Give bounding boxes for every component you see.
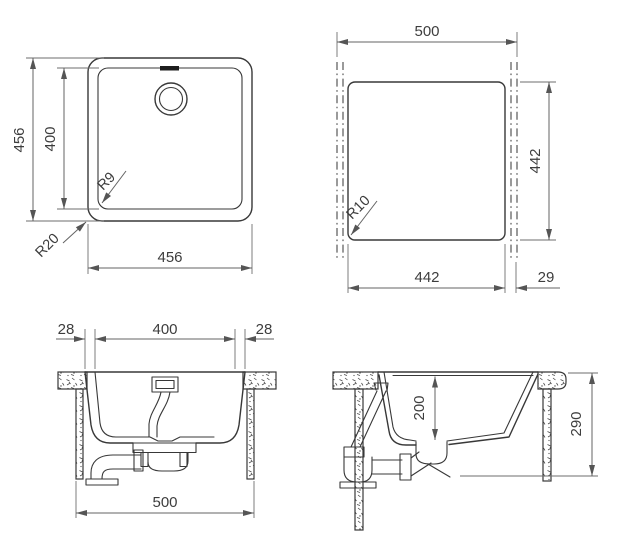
countertop-slab-back <box>538 372 566 389</box>
dim-plan-height: 456 <box>11 127 28 152</box>
dim-plan-width: 456 <box>157 249 182 266</box>
dim-front-bowl-width: 400 <box>152 321 177 338</box>
trap-coupling <box>134 450 143 471</box>
plan-sink-outline <box>88 58 252 221</box>
cutout-outline <box>348 82 505 240</box>
label-plan-outer-radius: R20 <box>33 231 63 261</box>
dim-cutout-width: 500 <box>414 23 439 40</box>
drain-cup <box>148 453 188 472</box>
cabinet-panel-left <box>76 389 83 479</box>
dim-front-left-offset: 28 <box>58 321 75 338</box>
dim-cutout-height: 442 <box>527 148 544 173</box>
side-countertop <box>333 372 566 530</box>
dim-cutout-inner-width: 442 <box>414 269 439 286</box>
wall-left-outer <box>85 372 133 443</box>
technical-drawing: 456 400 R9 R20 456 <box>0 0 638 538</box>
side-drain-cup <box>416 442 447 464</box>
cutout-cabinet-lines <box>337 62 517 258</box>
front-section-view: 28 400 28 500 <box>56 321 276 518</box>
cabinet-panel-right <box>247 389 254 479</box>
drain-fitting-right <box>180 453 187 467</box>
plan-dimensions: 456 400 R9 R20 456 <box>11 58 252 274</box>
plan-view: 456 400 R9 R20 456 <box>11 58 252 274</box>
overflow-hose-left <box>149 392 161 437</box>
countertop-slab-left <box>58 372 87 389</box>
wall-right-outer <box>196 372 245 443</box>
countertop-slab-right <box>243 372 276 389</box>
front-sink-section <box>85 372 245 485</box>
side-section-view: 200 290 <box>333 372 598 530</box>
plan-bowl-edge <box>98 68 242 209</box>
cabinet-panel-back <box>543 389 551 481</box>
dim-front-cabinet-width: 500 <box>152 494 177 511</box>
front-dimensions: 28 400 28 500 <box>56 321 274 518</box>
dim-side-bowl-depth: 200 <box>411 395 428 420</box>
cutout-view: 500 442 R10 442 29 <box>337 23 560 293</box>
plan-overflow-slot <box>160 66 179 71</box>
drain-fitting-left <box>141 453 148 467</box>
cabinet-panel-front <box>355 389 363 530</box>
dim-side-overall-depth: 290 <box>568 411 585 436</box>
side-trap-coupling <box>400 454 411 480</box>
dim-cutout-edge-offset: 29 <box>538 269 555 286</box>
drawing-svg: 456 400 R9 R20 456 <box>0 0 638 538</box>
side-wall-back-inner <box>447 372 533 441</box>
overflow-housing-inner <box>156 381 174 389</box>
trap-outlet-flange <box>86 479 118 485</box>
countertop-slab-front <box>333 372 378 389</box>
trap-elbow-inner <box>102 469 113 479</box>
dim-plan-bowl-height: 400 <box>42 126 59 151</box>
cutout-dimensions: 500 442 R10 442 29 <box>337 23 560 293</box>
side-dimensions: 200 290 <box>411 373 598 476</box>
dim-front-right-offset: 28 <box>256 321 273 338</box>
side-drain-locknut <box>428 464 450 477</box>
bowl-bottom-inner <box>95 372 214 441</box>
plan-drain-inner-ring <box>160 88 183 111</box>
